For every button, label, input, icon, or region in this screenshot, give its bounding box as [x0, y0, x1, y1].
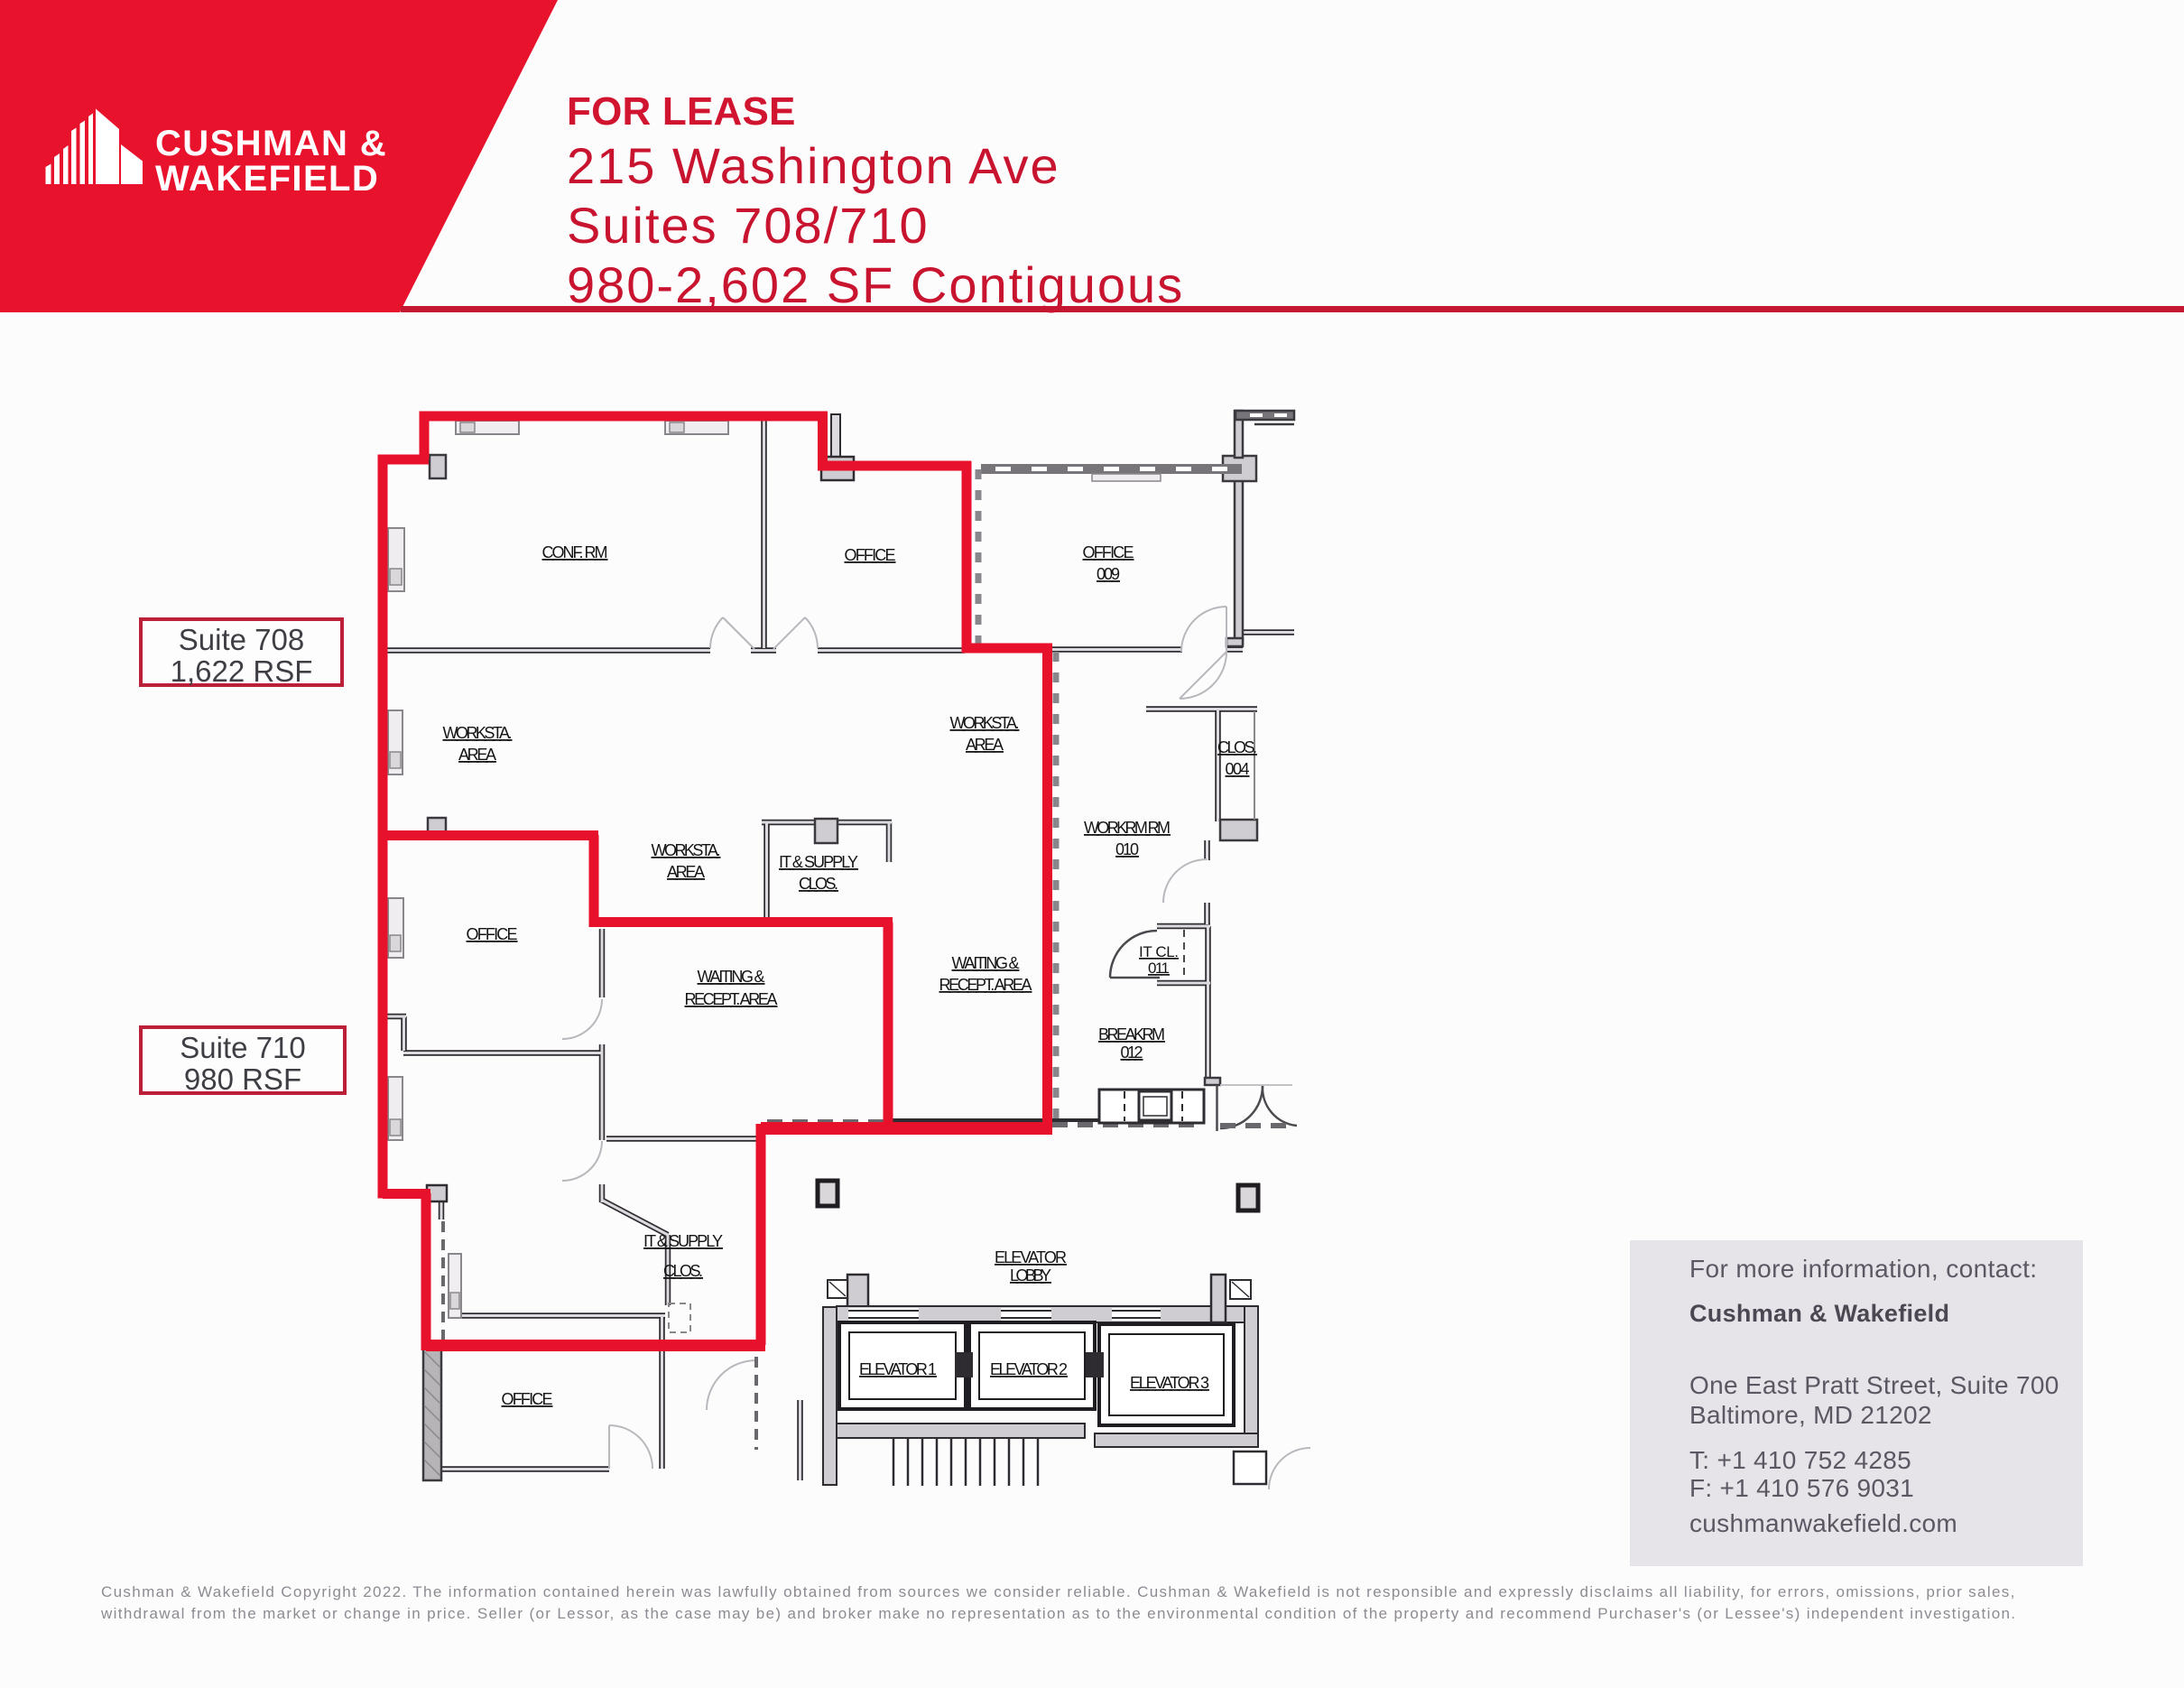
svg-text:AREA: AREA — [966, 736, 1004, 754]
svg-text:011: 011 — [1148, 960, 1170, 977]
svg-text:RECEPT. AREA: RECEPT. AREA — [939, 976, 1032, 994]
svg-text:BREAKRM: BREAKRM — [1098, 1025, 1165, 1043]
svg-text:CLOS.: CLOS. — [799, 875, 838, 893]
svg-text:ELEVATOR 1: ELEVATOR 1 — [859, 1360, 937, 1378]
svg-text:009: 009 — [1097, 565, 1120, 583]
svg-text:ELEVATOR: ELEVATOR — [995, 1248, 1067, 1266]
svg-text:CLOS.: CLOS. — [663, 1262, 703, 1280]
svg-text:RECEPT. AREA: RECEPT. AREA — [685, 990, 778, 1008]
svg-text:012: 012 — [1121, 1043, 1143, 1062]
svg-text:AREA: AREA — [667, 863, 705, 881]
svg-text:IT & SUPPLY: IT & SUPPLY — [779, 853, 858, 871]
svg-text:WORKRM RM: WORKRM RM — [1084, 819, 1171, 837]
svg-text:CLOS.: CLOS. — [1217, 738, 1257, 756]
svg-text:WAITING &: WAITING & — [952, 954, 1020, 972]
svg-text:AREA: AREA — [458, 746, 496, 764]
svg-text:WORKSTA.: WORKSTA. — [950, 714, 1020, 732]
svg-text:ELEVATOR 3: ELEVATOR 3 — [1130, 1374, 1209, 1392]
svg-text:010: 010 — [1115, 840, 1139, 858]
svg-text:OFFICE: OFFICE — [845, 546, 896, 564]
svg-text:IT & SUPPLY: IT & SUPPLY — [643, 1232, 723, 1250]
svg-text:004: 004 — [1226, 760, 1250, 778]
svg-text:LOBBY: LOBBY — [1010, 1266, 1051, 1285]
svg-text:OFFICE: OFFICE — [1083, 543, 1134, 561]
svg-text:WORKSTA.: WORKSTA. — [443, 724, 513, 742]
svg-text:OFFICE: OFFICE — [467, 925, 518, 943]
svg-text:ELEVATOR 2: ELEVATOR 2 — [990, 1360, 1068, 1378]
svg-text:IT CL.: IT CL. — [1139, 943, 1179, 960]
svg-text:CONF. RM: CONF. RM — [542, 543, 608, 561]
svg-text:OFFICE: OFFICE — [502, 1390, 553, 1408]
svg-text:WAITING &: WAITING & — [698, 968, 765, 986]
svg-text:WORKSTA.: WORKSTA. — [652, 841, 721, 859]
